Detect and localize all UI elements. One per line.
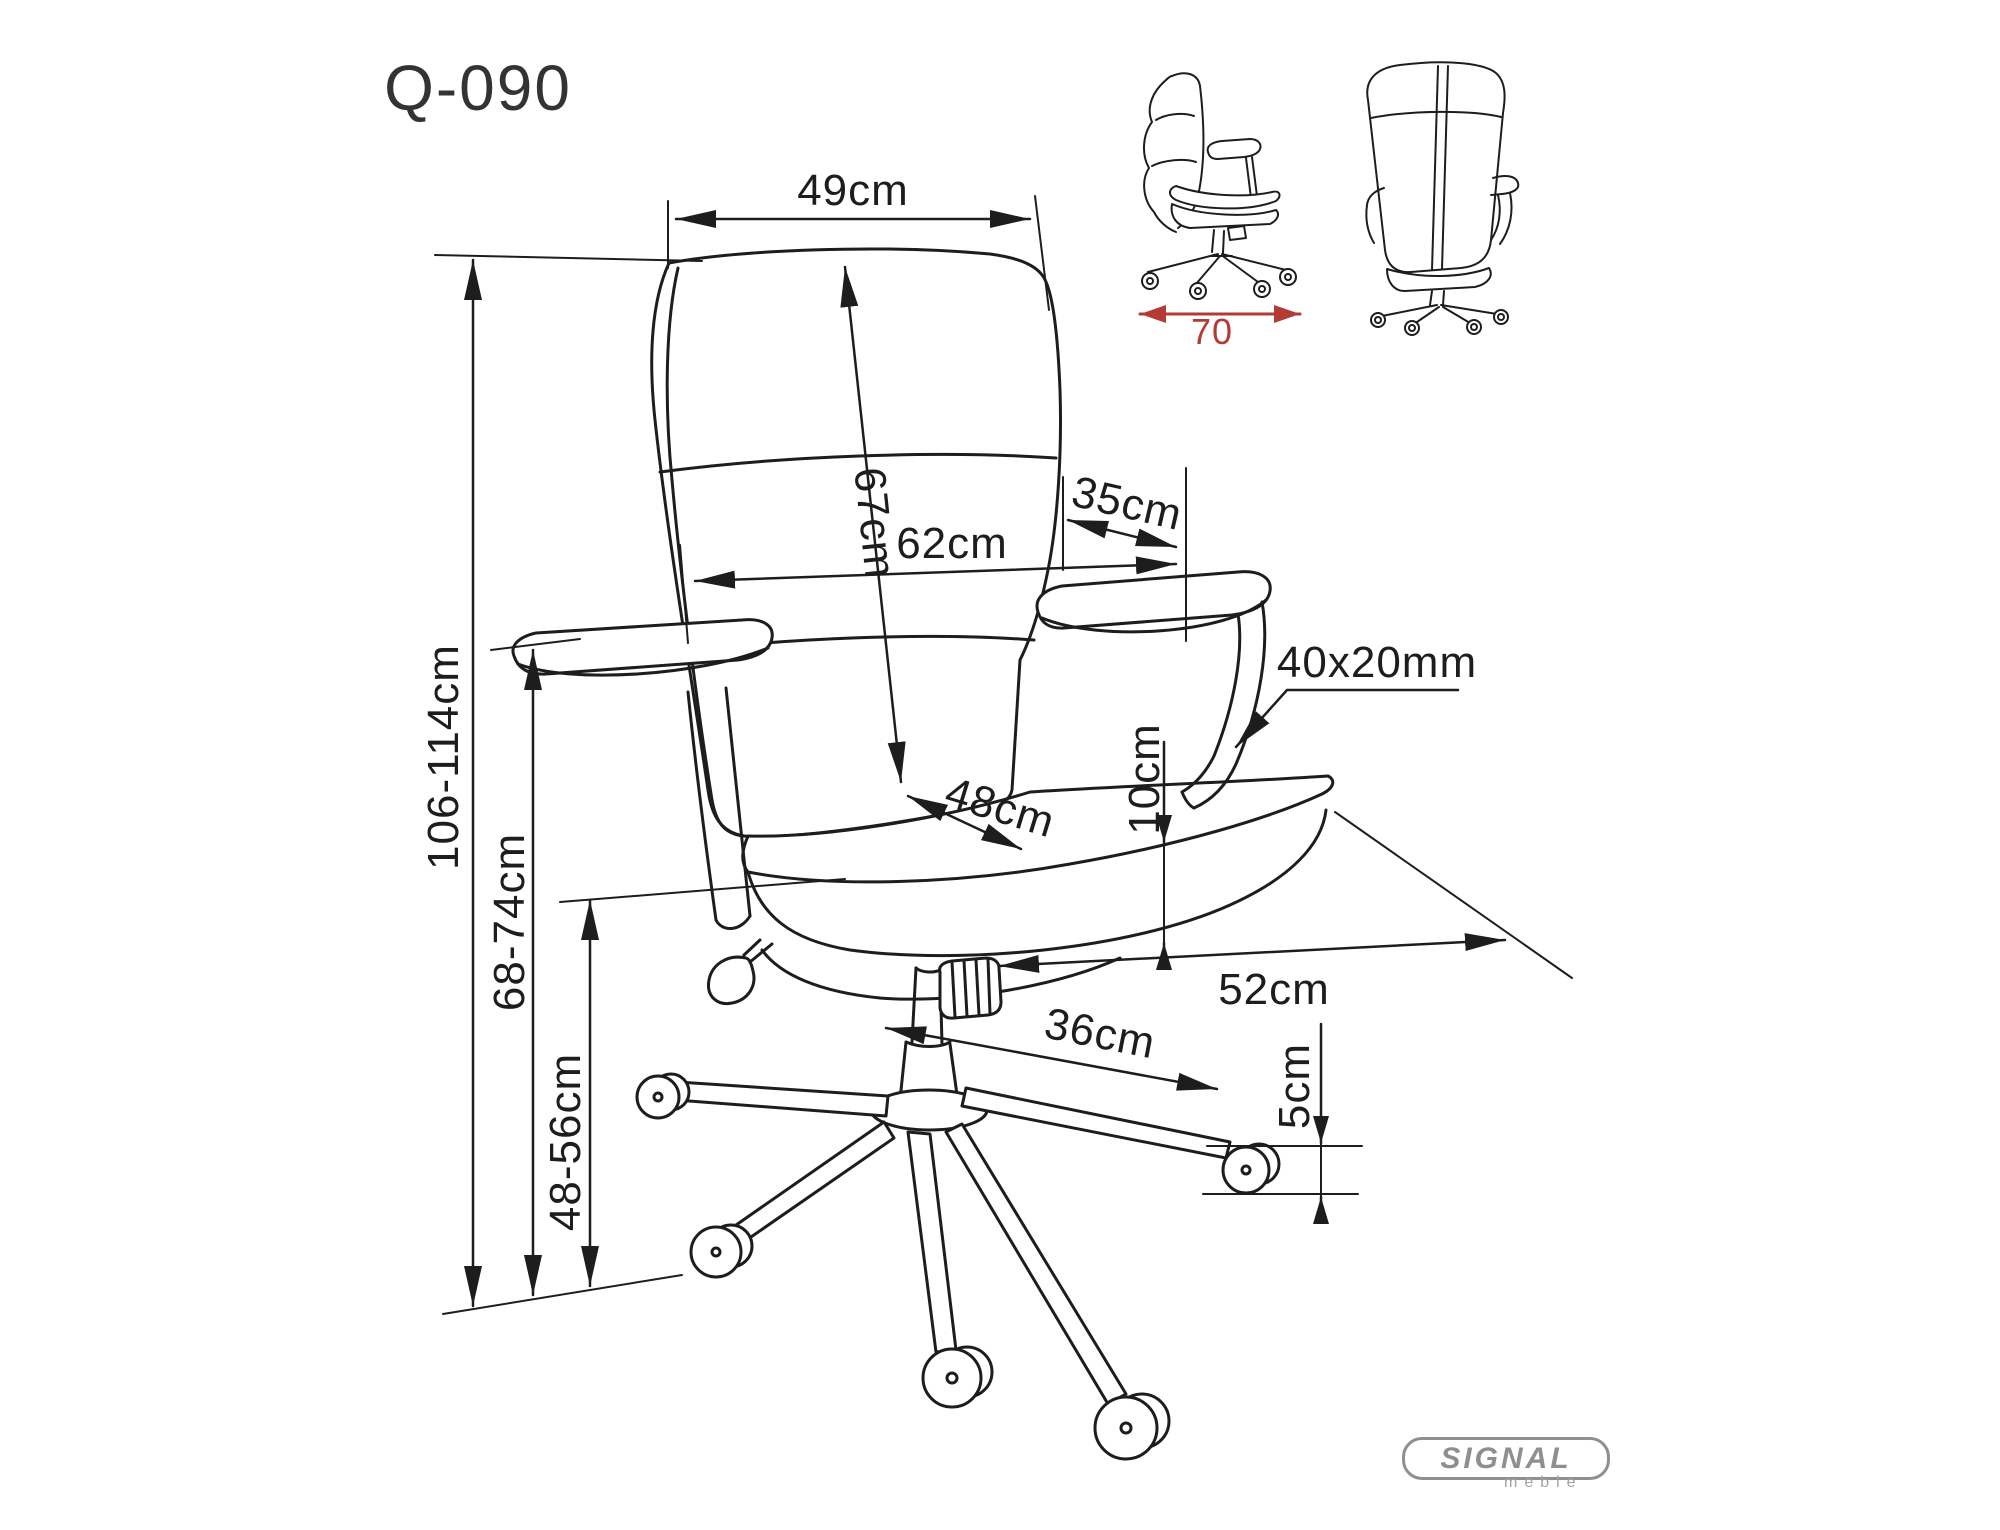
caster xyxy=(691,1225,752,1277)
dim-caster-height-label: 5cm xyxy=(1270,1043,1320,1129)
dim-seat-height-label: 48-56cm xyxy=(541,1053,591,1231)
caster xyxy=(1223,1144,1279,1193)
chair-side-view xyxy=(1142,73,1296,299)
dim-backrest-width-label: 49cm xyxy=(797,166,909,216)
dim-seat-thickness-label: 10cm xyxy=(1120,723,1170,835)
signal-logo-text: SIGNAL xyxy=(1440,1442,1571,1476)
caster xyxy=(1095,1394,1169,1459)
dim-overall-height-label: 106-114cm xyxy=(419,644,469,870)
chair-technical-drawing xyxy=(0,0,2000,1530)
dim-footprint-width-label: 70 xyxy=(1191,311,1233,353)
signal-logo-subtitle: meble xyxy=(1504,1474,1583,1492)
page-title: Q-090 xyxy=(384,51,572,125)
technical-drawing-page: Q-090 49cm 67cm 62cm 35cm 40x20mm 10cm 4… xyxy=(0,0,2000,1530)
caster xyxy=(923,1347,992,1407)
dim-armrest-height-label: 68-74cm xyxy=(485,833,535,1011)
gas-lift xyxy=(900,958,1001,1102)
dim-base-depth-label: 52cm xyxy=(1218,965,1330,1015)
dim-armrest-profile-label: 40x20mm xyxy=(1277,638,1477,688)
chair-back-view xyxy=(1366,62,1518,335)
caster xyxy=(637,1074,689,1118)
dim-overall-width-label: 62cm xyxy=(896,519,1008,569)
